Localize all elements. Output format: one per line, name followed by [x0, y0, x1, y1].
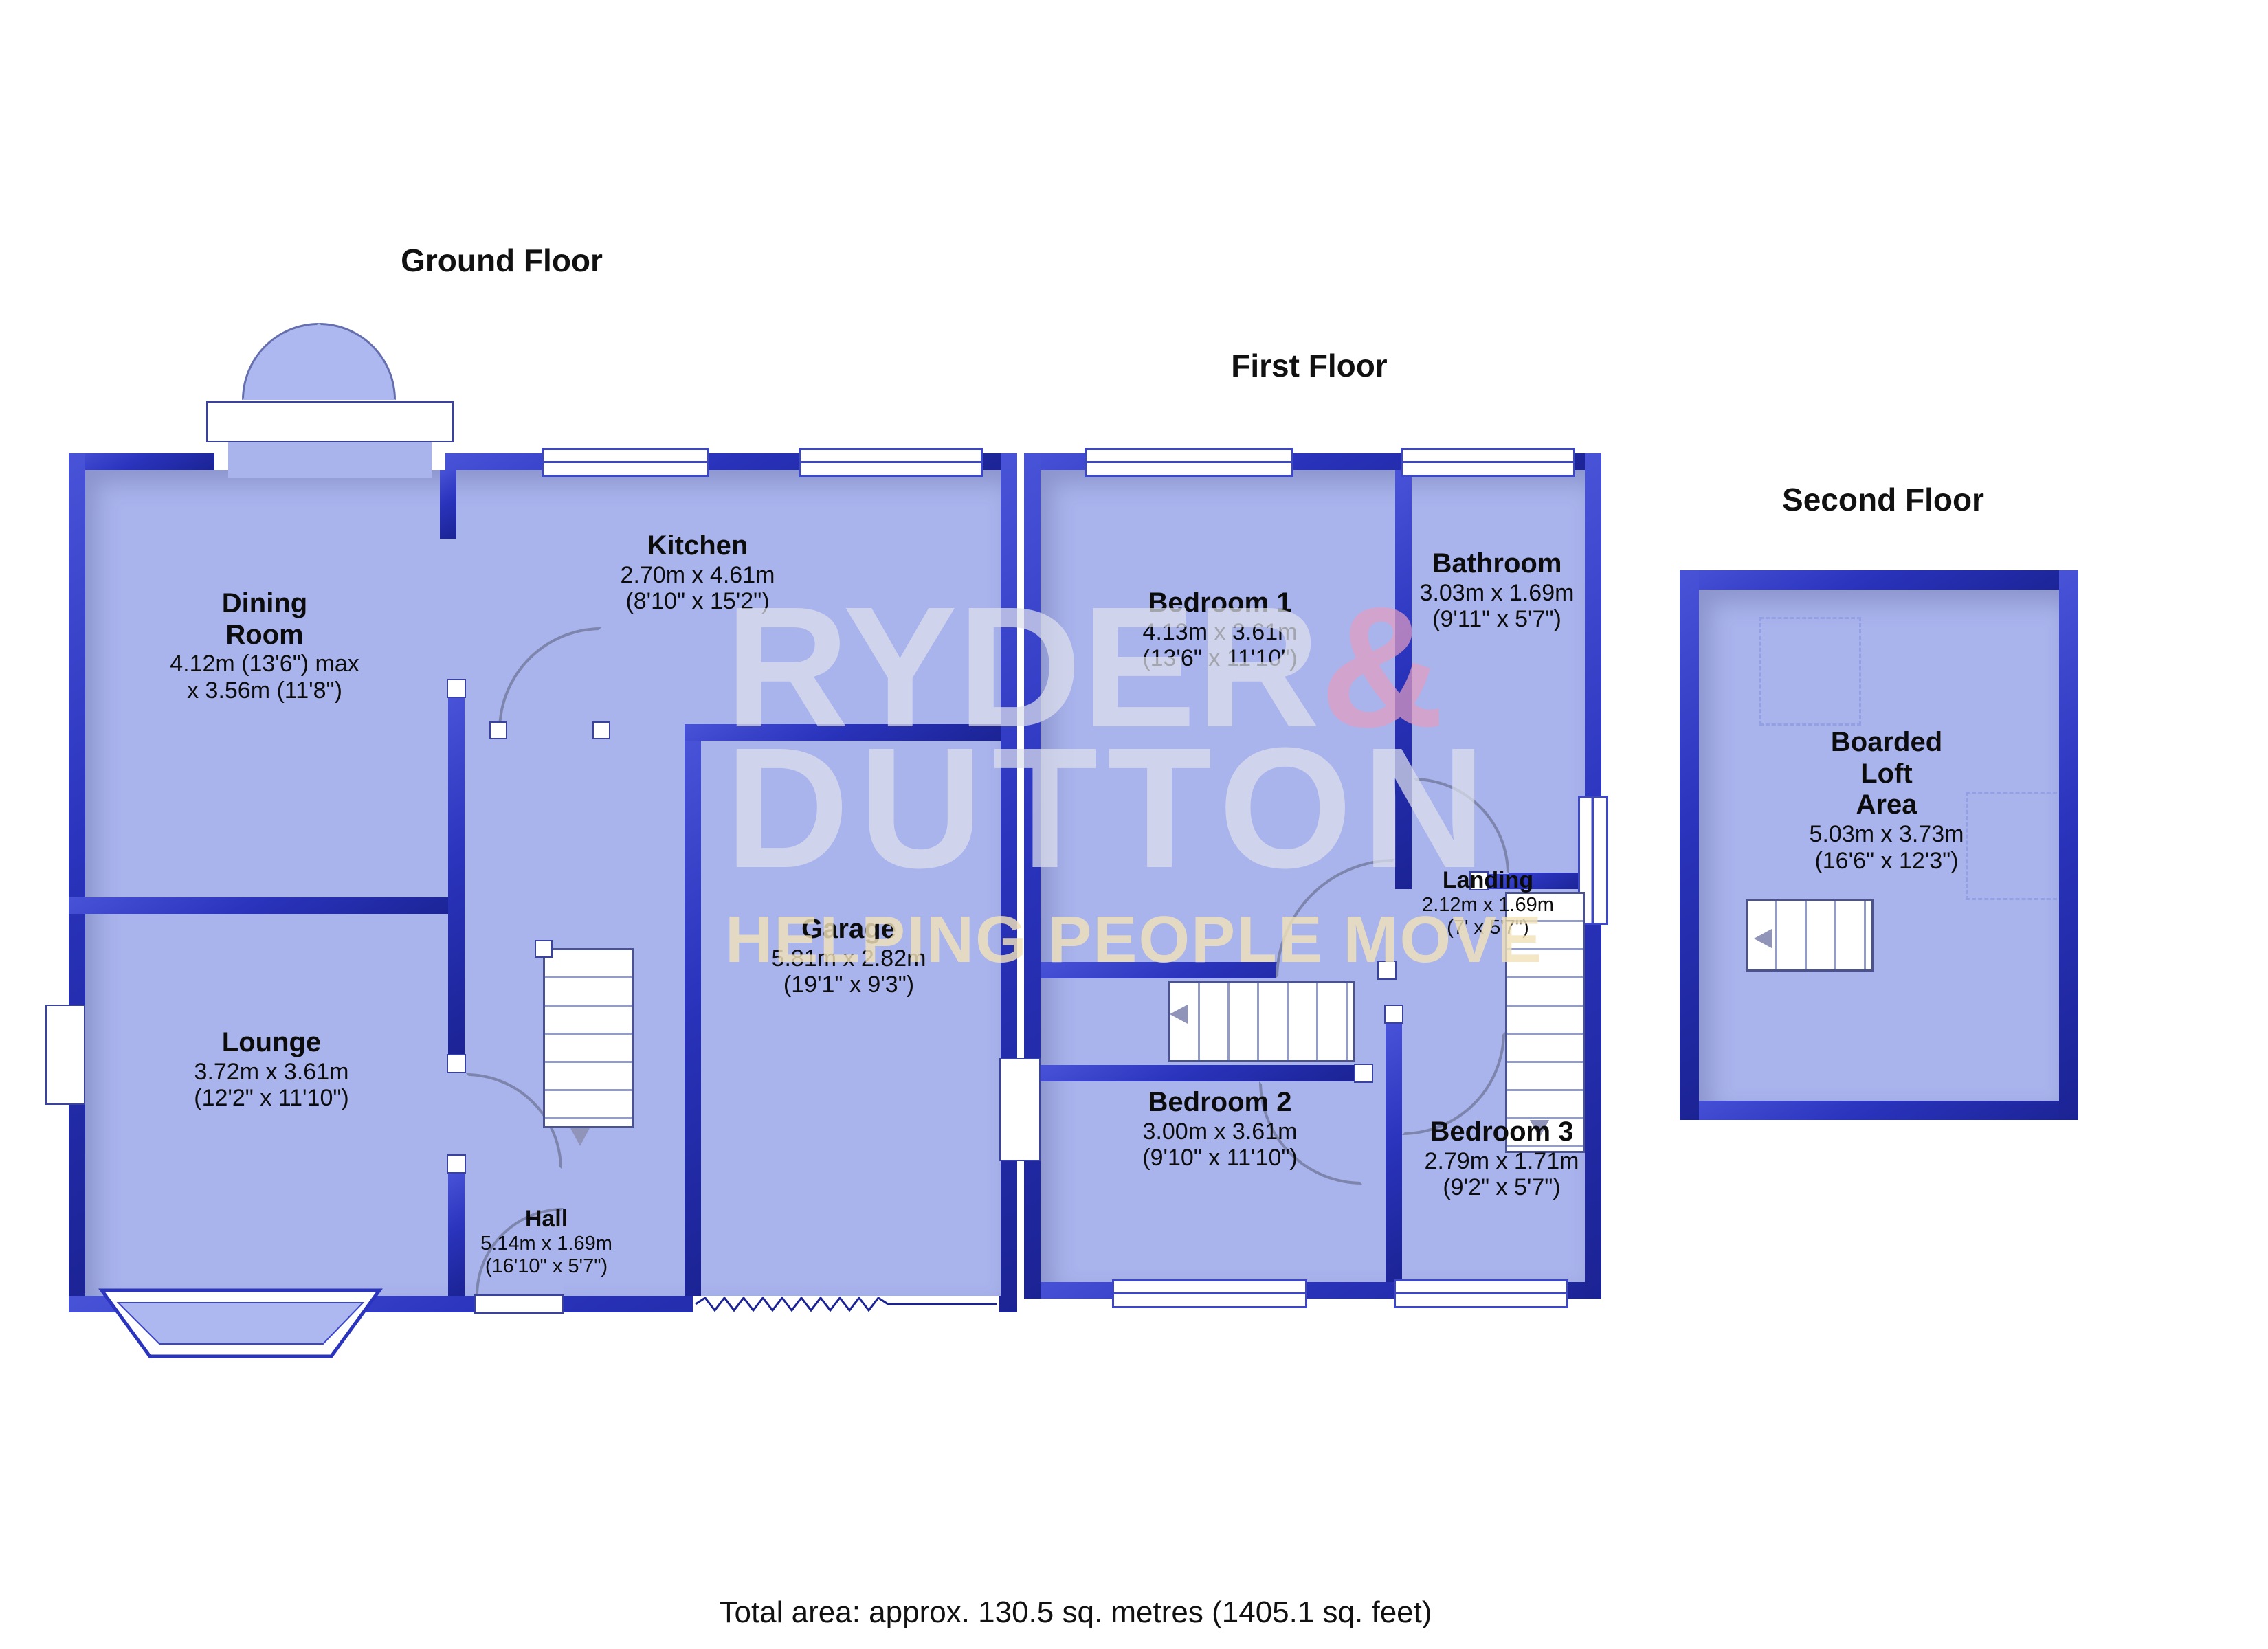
front-door-threshold [474, 1294, 564, 1314]
stair-direction-arrow [570, 1128, 590, 1146]
room-name: Room [117, 620, 412, 651]
sloped-ceiling-dashed-area [1759, 617, 1861, 726]
room-dimensions: 3.00m x 3.61m [1069, 1119, 1371, 1145]
bay-window [89, 1288, 392, 1360]
room-dimensions: (19'1" x 9'3") [708, 972, 990, 998]
boarded-loft-area-label: Boarded Loft Area 5.03m x 3.73m (16'6" x… [1749, 727, 2024, 874]
room-dimensions: 3.03m x 1.69m [1394, 580, 1600, 607]
wall-hall-left-upper [448, 697, 465, 1054]
wall [1001, 453, 1017, 1312]
hall-label: Hall 5.14m x 1.69m (16'10" x 5'7") [443, 1206, 649, 1278]
wall-dining-lounge [69, 897, 465, 914]
door-jamb [592, 721, 610, 739]
wall [1024, 453, 1041, 1299]
room-dimensions: 2.70m x 4.61m [550, 562, 845, 589]
dining-room-label: Dining Room 4.12m (13'6") max x 3.56m (1… [117, 588, 412, 704]
first-floor-title: First Floor [1134, 347, 1485, 384]
room-dimensions: (7' x 5'7") [1388, 917, 1588, 939]
wall [69, 453, 85, 1312]
room-dimensions: 5.14m x 1.69m [443, 1233, 649, 1255]
room-name: Bathroom [1394, 548, 1600, 580]
landing-label: Landing 2.12m x 1.69m (7' x 5'7") [1388, 867, 1588, 939]
room-name: Bedroom 1 [1069, 587, 1371, 619]
kitchen-label: Kitchen 2.70m x 4.61m (8'10" x 15'2") [550, 530, 845, 615]
french-door-opening-floor [228, 440, 432, 478]
lounge-chimney-recess [45, 1005, 85, 1105]
garage-door-zigzag [693, 1294, 999, 1314]
room-name: Bedroom 2 [1069, 1087, 1371, 1119]
room-dimensions: (16'6" x 12'3") [1749, 848, 2024, 875]
stair-direction-arrow [1754, 929, 1772, 948]
second-floor-title: Second Floor [1698, 481, 2069, 518]
bedroom1-label: Bedroom 1 4.13m x 3.61m (13'6" x 11'10") [1069, 587, 1371, 672]
room-name: Area [1749, 789, 2024, 821]
stair-newel [535, 940, 553, 958]
room-dimensions: 5.03m x 3.73m [1749, 821, 2024, 848]
wall-bed1-bathroom [1395, 470, 1412, 889]
room-dimensions: (16'10" x 5'7") [443, 1255, 649, 1278]
french-door-sill [206, 401, 454, 442]
french-door-leaf-left [242, 323, 319, 400]
kitchen-window-1 [542, 448, 709, 477]
wall [1680, 570, 1699, 1120]
room-dimensions: 4.13m x 3.61m [1069, 619, 1371, 646]
room-name: Bedroom 3 [1385, 1117, 1619, 1148]
door-jamb [1377, 961, 1397, 980]
door-jamb [1384, 1005, 1403, 1024]
bedroom1-window [1085, 448, 1293, 477]
wall-stub [440, 470, 456, 539]
bedroom2-chimney-recess [999, 1058, 1041, 1161]
lounge-label: Lounge 3.72m x 3.61m (12'2" x 11'10") [124, 1027, 419, 1112]
room-name: Dining [117, 588, 412, 620]
room-dimensions: (12'2" x 11'10") [124, 1085, 419, 1112]
door-jamb [447, 679, 466, 698]
room-dimensions: (9'11" x 5'7") [1394, 606, 1600, 633]
room-dimensions: (13'6" x 11'10") [1069, 645, 1371, 672]
wall-bed2-top [1041, 1065, 1355, 1081]
room-dimensions: 3.72m x 3.61m [124, 1059, 419, 1086]
door-jamb [447, 1154, 466, 1174]
stair-direction-arrow [1170, 1005, 1188, 1024]
room-dimensions: 2.79m x 1.71m [1385, 1148, 1619, 1175]
garage-label: Garage 5.81m x 2.82m (19'1" x 9'3") [708, 914, 990, 998]
door-jamb [489, 721, 507, 739]
room-dimensions: 2.12m x 1.69m [1388, 894, 1588, 917]
wall-garage-top [685, 724, 1001, 741]
bathroom-window [1401, 448, 1575, 477]
wall [1680, 570, 2078, 590]
ground-floor-title: Ground Floor [340, 242, 663, 279]
door-jamb [447, 1054, 466, 1073]
french-door-leaf-right [319, 323, 396, 400]
room-name: Kitchen [550, 530, 845, 562]
bedroom2-label: Bedroom 2 3.00m x 3.61m (9'10" x 11'10") [1069, 1087, 1371, 1171]
wall-garage-left [685, 741, 701, 1296]
room-name: Garage [708, 914, 990, 945]
wall [2059, 570, 2078, 1120]
door-jamb [1354, 1064, 1373, 1083]
room-dimensions: 5.81m x 2.82m [708, 945, 990, 972]
bedroom3-window [1394, 1279, 1568, 1308]
room-name: Hall [443, 1206, 649, 1233]
floorplan-page: Ground Floor First Floor Second Floor [0, 0, 2268, 1649]
room-name: Landing [1388, 867, 1588, 894]
bedroom2-window [1112, 1279, 1307, 1308]
room-name: Boarded [1749, 727, 2024, 759]
room-name: Lounge [124, 1027, 419, 1059]
wall [1680, 1101, 2078, 1120]
room-dimensions: (9'2" x 5'7") [1385, 1174, 1619, 1201]
room-dimensions: 4.12m (13'6") max [117, 651, 412, 677]
room-dimensions: x 3.56m (11'8") [117, 677, 412, 704]
wall [69, 453, 214, 470]
total-area-text: Total area: approx. 130.5 sq. metres (14… [619, 1595, 1533, 1630]
room-dimensions: (8'10" x 15'2") [550, 588, 845, 615]
stairwell-staircase [1168, 981, 1355, 1062]
room-dimensions: (9'10" x 11'10") [1069, 1145, 1371, 1171]
bedroom3-label: Bedroom 3 2.79m x 1.71m (9'2" x 5'7") [1385, 1117, 1619, 1201]
room-name: Loft [1749, 759, 2024, 790]
kitchen-window-2 [799, 448, 983, 477]
hall-staircase [543, 948, 634, 1128]
bathroom-label: Bathroom 3.03m x 1.69m (9'11" x 5'7") [1394, 548, 1600, 633]
